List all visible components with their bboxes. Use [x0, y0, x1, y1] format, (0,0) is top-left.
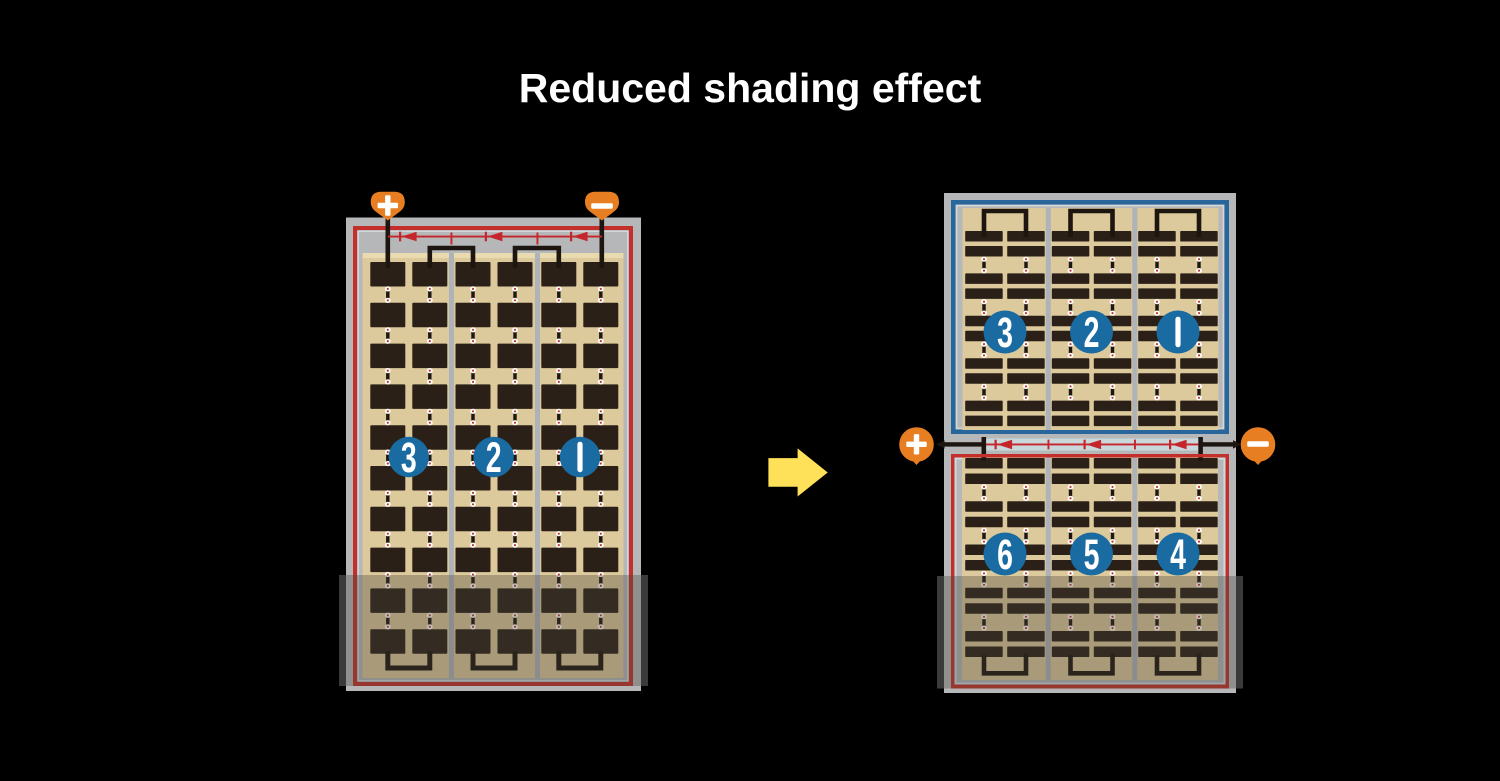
svg-text:5: 5 — [1084, 530, 1100, 578]
svg-text:4: 4 — [1170, 530, 1186, 578]
svg-text:3: 3 — [997, 308, 1013, 356]
svg-text:2: 2 — [1084, 308, 1100, 356]
svg-text:Reduced shading effect: Reduced shading effect — [519, 65, 982, 111]
svg-text:6: 6 — [997, 530, 1013, 578]
svg-text:2: 2 — [486, 433, 502, 481]
svg-text:3: 3 — [401, 433, 417, 481]
